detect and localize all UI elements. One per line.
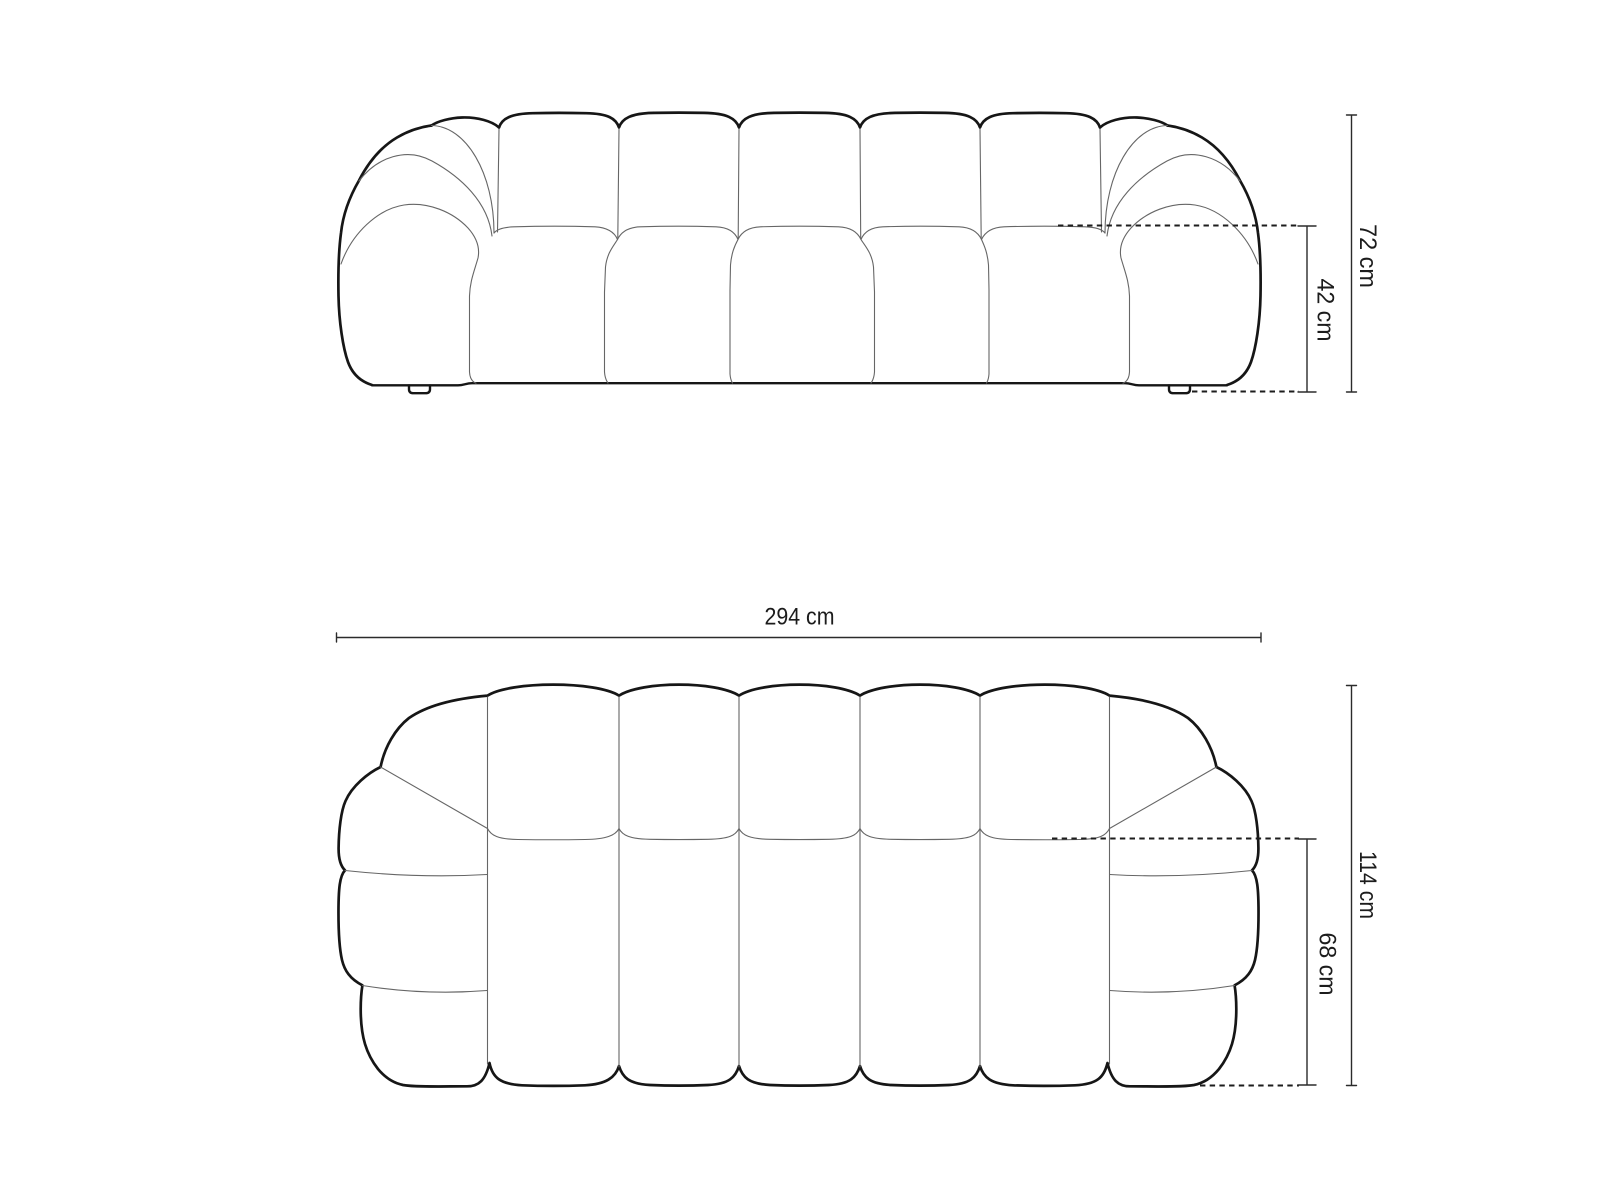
svg-text:114 cm: 114 cm — [1354, 851, 1381, 919]
svg-text:294 cm: 294 cm — [765, 604, 835, 631]
svg-text:68 cm: 68 cm — [1314, 933, 1341, 996]
svg-text:72 cm: 72 cm — [1354, 224, 1381, 288]
svg-text:42 cm: 42 cm — [1312, 279, 1339, 342]
